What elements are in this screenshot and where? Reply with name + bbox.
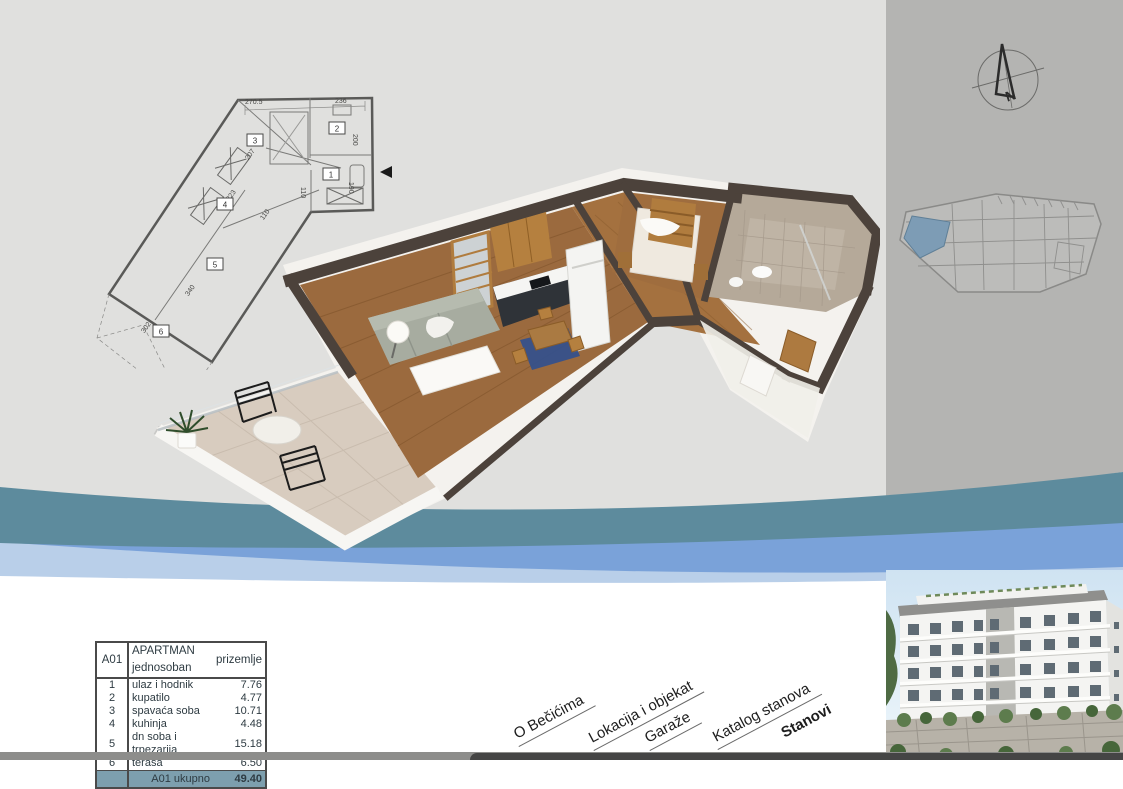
fridge — [566, 240, 610, 352]
table-row: 4 kuhinja 4.48 — [96, 718, 266, 731]
toilet — [729, 277, 743, 287]
table-total-row: A01 ukupno 49.40 — [96, 771, 266, 789]
building-render-photo — [886, 570, 1123, 760]
room-name: kuhinja — [128, 718, 213, 731]
bottom-bar-dark-segment — [470, 753, 1123, 760]
room-area: 4.77 — [213, 692, 266, 705]
apartment-area-table: A01 APARTMAN jednosoban prizemlje 1 ulaz… — [95, 641, 267, 789]
svg-text:236: 236 — [335, 98, 347, 105]
room-name: ulaz i hodnik — [128, 678, 213, 692]
compass-icon: N — [966, 36, 1050, 120]
svg-text:N: N — [1003, 86, 1018, 104]
apartment-3d-render — [140, 140, 880, 580]
room-area: 7.76 — [213, 678, 266, 692]
svg-text:2: 2 — [335, 125, 340, 134]
apartment-floor: prizemlje — [213, 642, 266, 678]
svg-text:270.5: 270.5 — [245, 99, 263, 106]
total-value: 49.40 — [213, 771, 266, 789]
room-name: kupatilo — [128, 692, 213, 705]
apartment-type: APARTMAN jednosoban — [128, 642, 213, 678]
site-key-plan — [898, 182, 1110, 322]
nightstand — [618, 252, 632, 268]
apartment-code: A01 — [96, 642, 128, 678]
bathroom-sink — [752, 266, 772, 278]
nav-link-o-becicima[interactable]: O Bečićima — [508, 686, 595, 747]
room-area: 4.48 — [213, 718, 266, 731]
room-name: spavaća soba — [128, 705, 213, 718]
nightstand-2 — [694, 264, 708, 280]
table-row: 1 ulaz i hodnik 7.76 — [96, 678, 266, 692]
table-row: 3 spavaća soba 10.71 — [96, 705, 266, 718]
terrace-table — [253, 416, 301, 444]
room-area: 10.71 — [213, 705, 266, 718]
dining-chair-3 — [538, 307, 553, 320]
table-row: 2 kupatilo 4.77 — [96, 692, 266, 705]
table-header-row: A01 APARTMAN jednosoban prizemlje — [96, 642, 266, 678]
total-label: A01 ukupno — [128, 771, 213, 789]
